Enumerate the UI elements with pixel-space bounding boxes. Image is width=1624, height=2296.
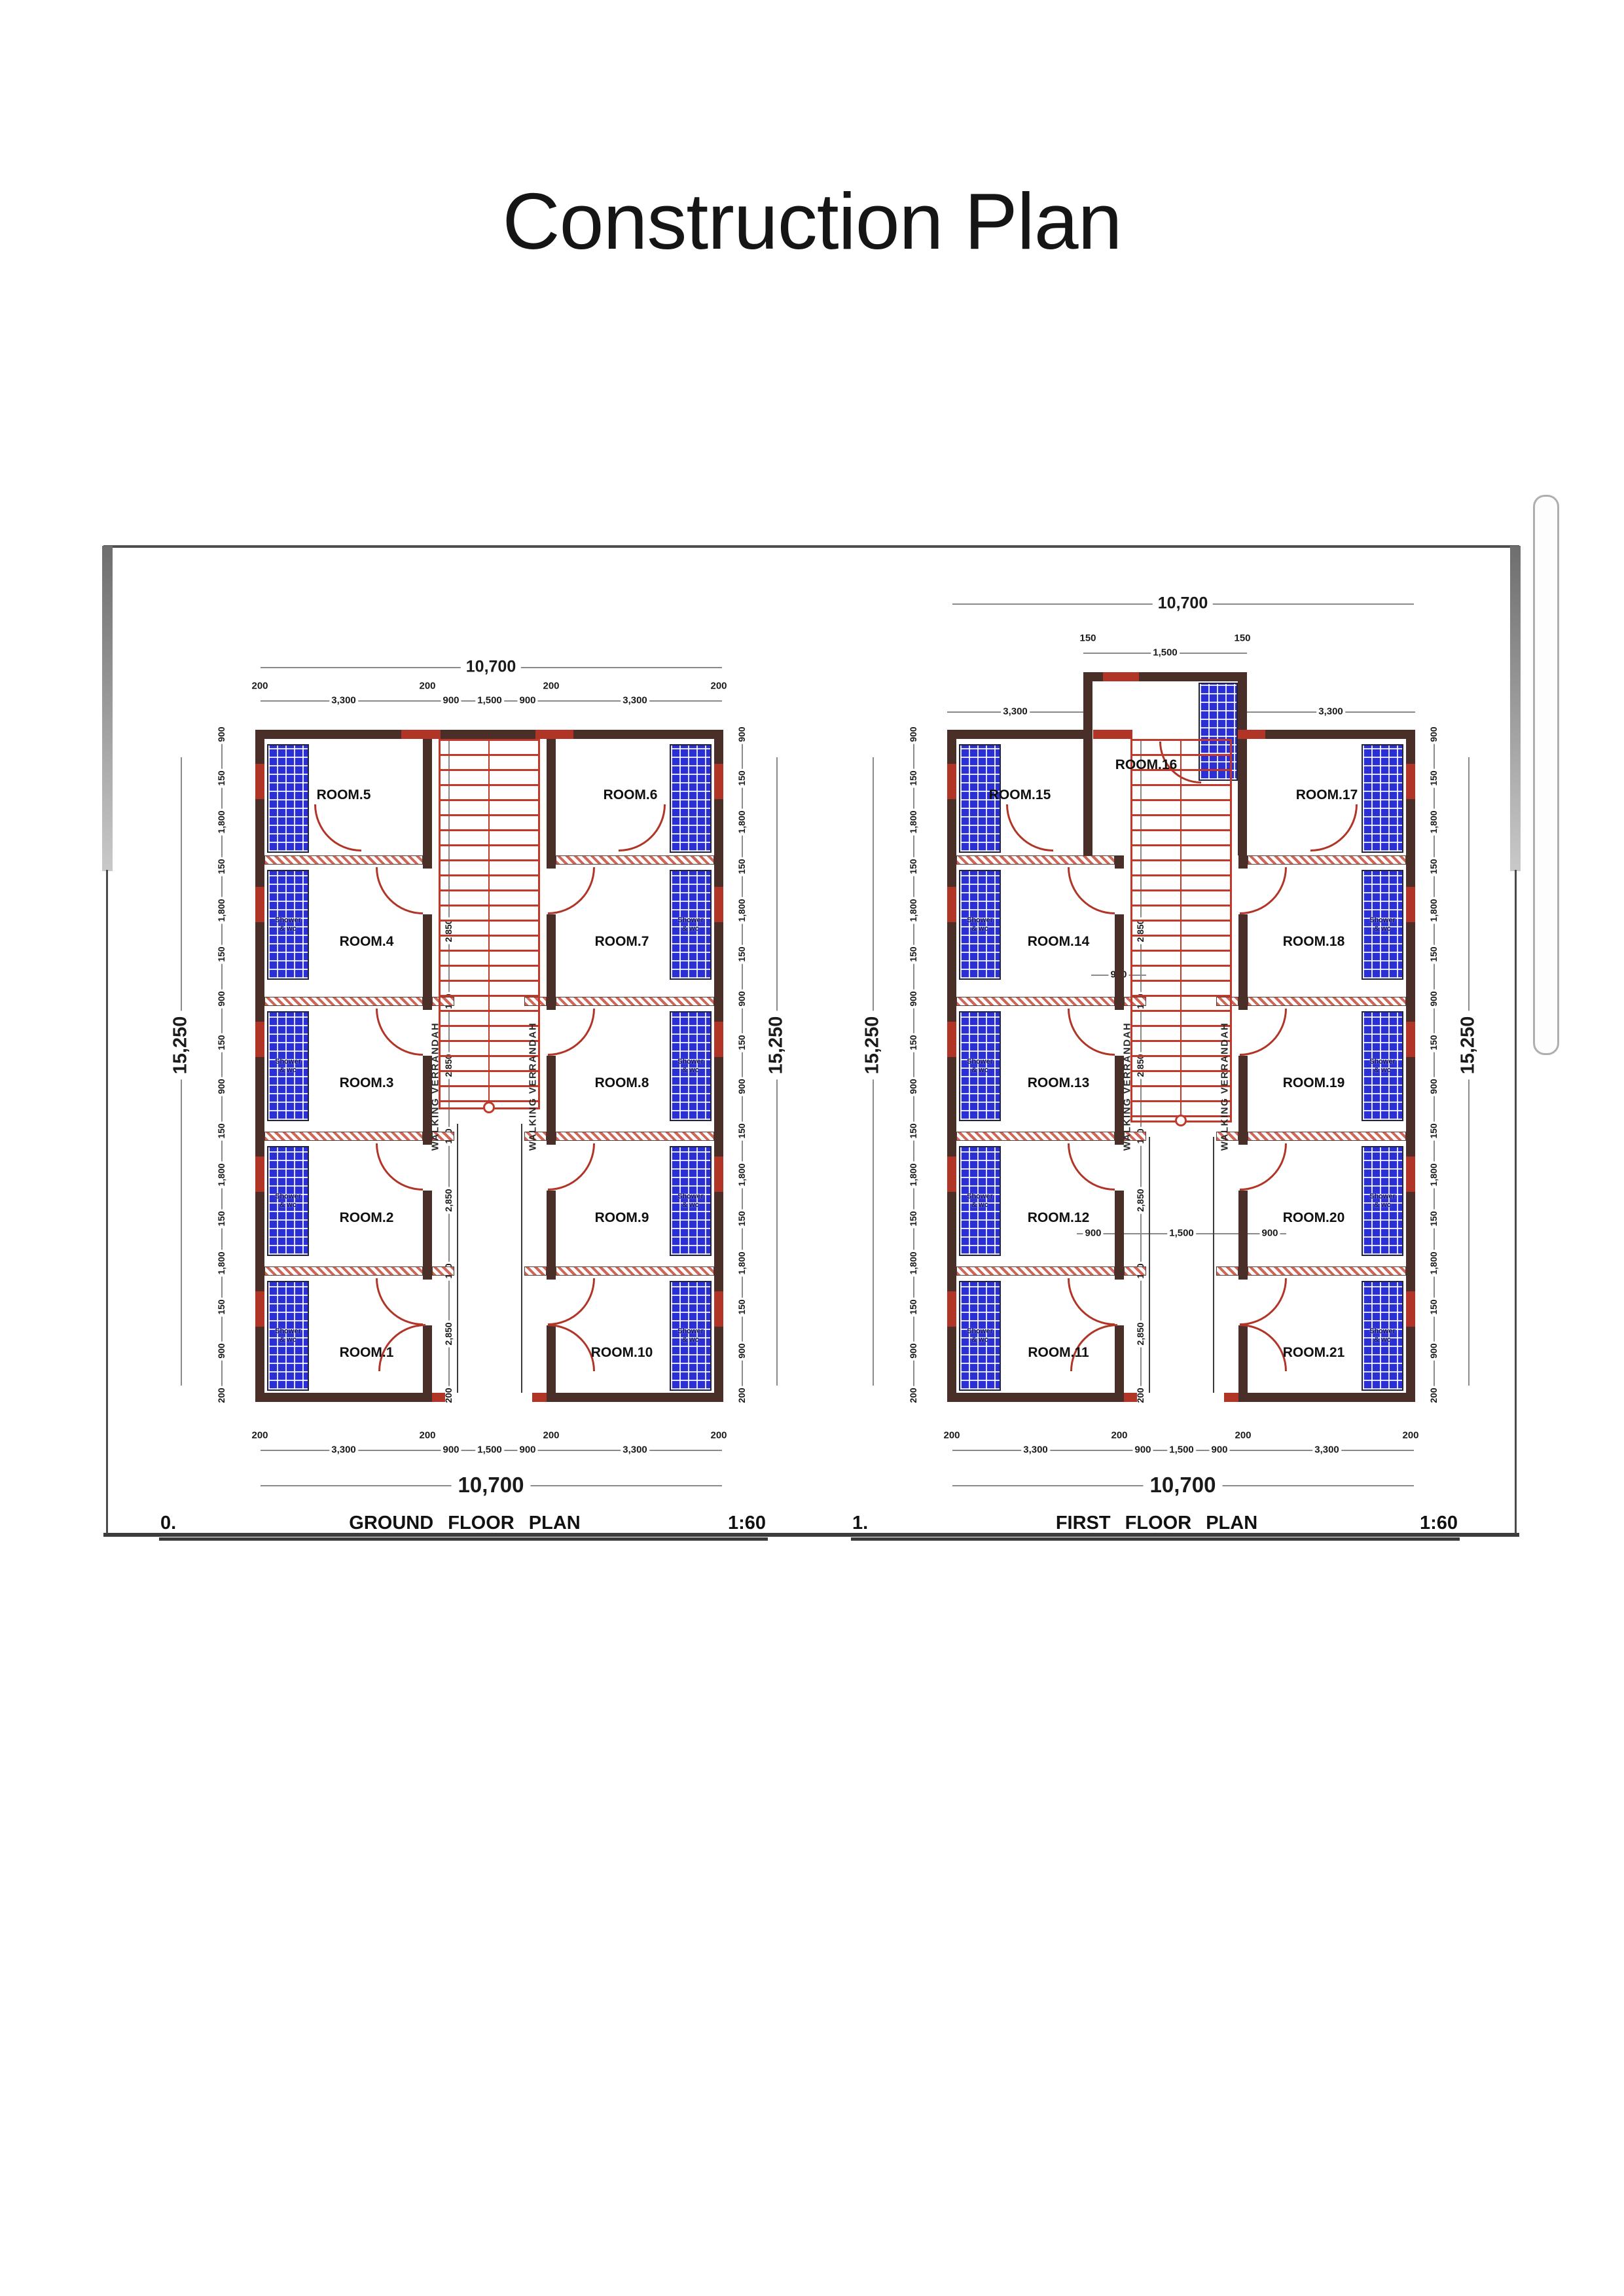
dimension-label: 150: [1428, 944, 1439, 963]
dimension-label: 900: [1259, 1228, 1280, 1239]
wall-opening-marker: [947, 1157, 956, 1192]
room-label: ROOM.9: [595, 1210, 649, 1226]
plans-panel: 10,7002003,3002009001,5009002003,3002002…: [103, 545, 1519, 1537]
wall-opening-marker: [714, 1291, 723, 1327]
dimension-label: 150: [736, 768, 747, 787]
dimension-label: 900: [736, 989, 747, 1008]
shower-tile: Shower & wc: [267, 1011, 309, 1121]
corridor-line: [1213, 1137, 1214, 1393]
door-arc: [548, 1009, 595, 1056]
wall-opening-marker: [1224, 1393, 1238, 1402]
dimension-label: 900: [1083, 1228, 1103, 1239]
shower-label: Shower & wc: [967, 1193, 993, 1210]
dimension-label: 1,800: [1428, 808, 1439, 835]
dimension-label: 150: [1428, 1033, 1439, 1052]
door-gap: [423, 869, 432, 914]
dimension-label: 200: [216, 1386, 226, 1405]
dimension-label: 150: [736, 1033, 747, 1052]
partition-wall: [264, 1266, 423, 1276]
stair-rail: [1180, 739, 1182, 1122]
shower-tile: Shower & wc: [670, 1281, 712, 1391]
wall-opening-marker: [255, 764, 264, 799]
wall-opening-marker: [432, 1393, 445, 1402]
room-label: ROOM.6: [604, 787, 658, 803]
dimension-label: 900: [441, 1444, 461, 1456]
dimension-label: 150: [1077, 633, 1098, 644]
partition-wall: [432, 1266, 454, 1276]
door-arc: [1068, 1278, 1115, 1325]
shower-tile: Shower & wc: [267, 1281, 309, 1391]
scrollbar-thumb[interactable]: [1533, 495, 1559, 1055]
dimension-label: 150: [1428, 1121, 1439, 1140]
room-label: ROOM.10: [591, 1345, 653, 1361]
stair-rail: [488, 739, 490, 1109]
partition-wall: [1216, 1266, 1238, 1276]
dimension-label: 150: [1428, 1297, 1439, 1316]
corridor-line: [1149, 1137, 1150, 1393]
wall-opening-marker: [714, 1157, 723, 1192]
shower-tile: Shower & wc: [267, 870, 309, 980]
room-label: ROOM.8: [595, 1075, 649, 1091]
wall-opening-marker: [714, 764, 723, 799]
door-arc: [548, 1278, 595, 1325]
dimension-label: 150: [216, 857, 226, 876]
dimension-label: 1,500: [1167, 1228, 1196, 1239]
wall: [947, 1393, 1124, 1402]
dimension-label: 900: [908, 989, 918, 1008]
wall-opening-marker: [714, 1022, 723, 1057]
wall-opening-marker: [255, 887, 264, 922]
caption-underline: [851, 1537, 1460, 1541]
dimension-label: 200: [708, 681, 729, 692]
caption-underline: [159, 1537, 768, 1541]
dimension-label: 1,800: [736, 808, 747, 835]
dimension-label: 150: [736, 857, 747, 876]
dimension-label: 900: [908, 725, 918, 744]
dimension-label: 3,300: [1021, 1444, 1050, 1456]
dimension-label: 15,250: [862, 1011, 884, 1080]
dimension-label: 900: [216, 725, 226, 744]
partition-wall: [956, 1266, 1115, 1276]
dimension-label: 1,800: [216, 1161, 226, 1188]
partition-wall: [556, 997, 714, 1006]
dimension-label: 150: [908, 1297, 918, 1316]
wall: [255, 730, 723, 739]
corridor-line: [521, 1124, 522, 1393]
shower-tile: Shower & wc: [1362, 870, 1403, 980]
plan-title: GROUND FLOOR PLAN: [349, 1513, 580, 1534]
dimension-label: 150: [1428, 857, 1439, 876]
door-arc: [1240, 1278, 1287, 1325]
dimension-label: 200: [249, 1430, 270, 1441]
partition-wall: [524, 1266, 547, 1276]
dimension-label: 1,800: [908, 808, 918, 835]
room-label: ROOM.16: [1115, 757, 1178, 773]
door-arc: [376, 1143, 423, 1191]
dimension-label: 900: [216, 1077, 226, 1096]
door-gap: [1115, 1145, 1124, 1191]
wall: [1238, 1393, 1415, 1402]
room-label: ROOM.13: [1028, 1075, 1090, 1091]
dimension-label: 150: [736, 1297, 747, 1316]
partition-wall: [556, 1266, 714, 1276]
dimension-label: 2,850: [443, 1187, 454, 1213]
room-label: ROOM.1: [340, 1345, 394, 1361]
dimension-label: 1,500: [1167, 1444, 1196, 1456]
wall-opening-marker: [1406, 1022, 1415, 1057]
wall-opening-marker: [1124, 1393, 1137, 1402]
dimension-label: 1,800: [216, 1249, 226, 1276]
shower-tile: Shower & wc: [959, 1146, 1001, 1256]
wall-opening-marker: [532, 1393, 547, 1402]
page-title: Construction Plan: [0, 175, 1624, 267]
dimension-label: 200: [417, 681, 437, 692]
door-arc: [376, 1278, 423, 1325]
dimension-label: 1,500: [475, 695, 504, 706]
dimension-label: 2,850: [1135, 1320, 1146, 1347]
dimension-label: 900: [1428, 989, 1439, 1008]
dimension-label: 150: [216, 1033, 226, 1052]
dimension-label: 3,300: [621, 1444, 649, 1456]
dimension-label: 3,300: [1316, 706, 1345, 717]
partition-wall: [264, 997, 423, 1006]
wall: [255, 1393, 432, 1402]
shower-label: Shower & wc: [1369, 1327, 1396, 1344]
dimension-label: 150: [216, 768, 226, 787]
dimension-label: 900: [1428, 1077, 1439, 1096]
room-label: ROOM.7: [595, 934, 649, 950]
door-arc: [1240, 867, 1287, 914]
door-arc: [548, 1143, 595, 1191]
door-arc: [376, 867, 423, 914]
dimension-label: 900: [517, 1444, 537, 1456]
partition-wall: [264, 855, 423, 865]
dimension-label: 1,800: [736, 897, 747, 924]
room-label: ROOM.14: [1028, 934, 1090, 950]
door-arc: [1068, 1143, 1115, 1191]
corridor-line: [457, 1124, 458, 1393]
shower-tile: Shower & wc: [267, 1146, 309, 1256]
dimension-label: 150: [908, 857, 918, 876]
corridor-label: WALKING VERRANDAH: [430, 1022, 441, 1151]
dimension-label: 2,850: [1135, 1187, 1146, 1213]
dimension-label: 1,800: [1428, 1249, 1439, 1276]
dimension-label: 3,300: [1001, 706, 1030, 717]
dimension-label: 900: [736, 1077, 747, 1096]
wall-opening-marker: [947, 887, 956, 922]
plan-index: 0.: [160, 1513, 176, 1534]
dimension-label: 150: [1428, 1209, 1439, 1228]
door-arc: [314, 804, 361, 852]
dimension-label: 900: [1132, 1444, 1153, 1456]
wall-opening-marker: [1406, 1157, 1415, 1192]
dimension-label: 900: [736, 725, 747, 744]
door-gap: [1115, 1280, 1124, 1325]
partition-wall: [1248, 997, 1406, 1006]
dimension-label: 1,800: [736, 1249, 747, 1276]
wall-opening-marker: [947, 1291, 956, 1327]
dimension-label: 900: [216, 989, 226, 1008]
wall-opening-marker: [1406, 764, 1415, 799]
door-arc: [1310, 804, 1358, 852]
dimension-label: 200: [1400, 1430, 1420, 1441]
door-gap: [423, 1280, 432, 1325]
dimension-label: 900: [216, 1341, 226, 1360]
partition-wall: [956, 855, 1115, 865]
shower-label: Shower & wc: [677, 916, 704, 933]
partition-wall: [1248, 1132, 1406, 1141]
corridor-label: WALKING VERRANDAH: [1219, 1022, 1231, 1151]
wall: [547, 1393, 723, 1402]
room-label: ROOM.3: [340, 1075, 394, 1091]
dimension-label: 150: [1428, 768, 1439, 787]
dimension-label: 900: [1428, 1341, 1439, 1360]
wall-opening-marker: [255, 1022, 264, 1057]
dimension-label: 150: [908, 768, 918, 787]
shower-tile: Shower & wc: [670, 1011, 712, 1121]
dimension-label: 200: [908, 1386, 918, 1405]
dimension-label: 3,300: [1312, 1444, 1341, 1456]
door-gap: [1115, 869, 1124, 914]
wall-opening-marker: [255, 1157, 264, 1192]
shower-tile: Shower & wc: [670, 870, 712, 980]
room-label: ROOM.17: [1296, 787, 1358, 803]
room-label: ROOM.15: [989, 787, 1051, 803]
ground-floor-plan: 10,7002003,3002009001,5009002003,3002002…: [103, 548, 811, 1533]
dimension-label: 15,250: [766, 1011, 787, 1080]
dimension-label: 900: [908, 1077, 918, 1096]
dimension-label: 150: [908, 1033, 918, 1052]
room-label: ROOM.4: [340, 934, 394, 950]
partition-wall: [556, 1132, 714, 1141]
dimension-label: 150: [216, 1121, 226, 1140]
plan-title: FIRST FLOOR PLAN: [1056, 1513, 1257, 1534]
shower-label: Shower & wc: [967, 1058, 993, 1075]
dimension-label: 900: [1428, 725, 1439, 744]
door-arc: [1240, 1324, 1287, 1371]
shower-tile: Shower & wc: [1362, 1146, 1403, 1256]
stair-end: [1175, 1115, 1187, 1126]
dimension-label: 15,250: [1458, 1011, 1479, 1080]
dimension-label: 150: [1232, 633, 1252, 644]
shower-label: Shower & wc: [275, 1193, 301, 1210]
first-floor-plan: 10,7001501,5001503,3003,3002003,30020090…: [795, 548, 1503, 1533]
wall: [1238, 681, 1247, 855]
door-arc: [548, 867, 595, 914]
dimension-label: 1,500: [475, 1444, 504, 1456]
shower-label: Shower & wc: [967, 916, 993, 933]
partition-wall: [1124, 1266, 1146, 1276]
door-arc: [376, 1009, 423, 1056]
room-label: ROOM.5: [317, 787, 371, 803]
dimension-label: 200: [1109, 1430, 1129, 1441]
wall-opening-marker: [1103, 672, 1139, 681]
dimension-label: 150: [216, 944, 226, 963]
dimension-label: 150: [736, 944, 747, 963]
wall-opening-marker: [1406, 1291, 1415, 1327]
door-gap: [423, 1145, 432, 1191]
partition-wall: [1248, 855, 1406, 865]
door-arc: [1006, 804, 1053, 852]
shower-tile: Shower & wc: [959, 1011, 1001, 1121]
dimension-label: 200: [249, 681, 270, 692]
stair-end: [483, 1102, 495, 1113]
shower-label: Shower & wc: [1369, 916, 1396, 933]
wall-opening-marker: [401, 730, 441, 739]
dimension-label: 150: [736, 1121, 747, 1140]
dimension-label: 200: [941, 1430, 962, 1441]
room-label: ROOM.12: [1028, 1210, 1090, 1226]
room-label: ROOM.11: [1028, 1345, 1089, 1361]
dimension-label: 150: [908, 944, 918, 963]
shower-label: Shower & wc: [1369, 1058, 1396, 1075]
shower-tile: Shower & wc: [670, 1146, 712, 1256]
dimension-label: 900: [736, 1341, 747, 1360]
dimension-label: 200: [417, 1430, 437, 1441]
corridor-label: WALKING VERRANDAH: [528, 1022, 539, 1151]
plan-index: 1.: [852, 1513, 868, 1534]
panel-right-border-shadow: [1510, 546, 1521, 871]
door-arc: [1240, 1143, 1287, 1191]
dimension-label: 200: [1428, 1386, 1439, 1405]
shower-label: Shower & wc: [967, 1327, 993, 1344]
dimension-label: 900: [517, 695, 537, 706]
dimension-label: 200: [541, 681, 561, 692]
dimension-label: 1,800: [908, 897, 918, 924]
dimension-label: 1,800: [736, 1161, 747, 1188]
dimension-label: 150: [908, 1121, 918, 1140]
wall-opening-marker: [1093, 730, 1132, 739]
wall: [1247, 730, 1415, 739]
dimension-label: 3,300: [621, 695, 649, 706]
shower-label: Shower & wc: [677, 1193, 704, 1210]
dimension-label: 1,800: [1428, 1161, 1439, 1188]
wall-opening-marker: [255, 1291, 264, 1327]
dimension-label: 200: [541, 1430, 561, 1441]
dimension-label: 150: [216, 1297, 226, 1316]
wall-opening-marker: [1406, 887, 1415, 922]
window-tile: [267, 744, 309, 853]
dimension-label: 1,800: [1428, 897, 1439, 924]
wall-opening-marker: [714, 887, 723, 922]
window-tile: [670, 744, 712, 853]
dimension-label: 900: [441, 695, 461, 706]
shower-label: Shower & wc: [1369, 1193, 1396, 1210]
shower-tile: Shower & wc: [959, 870, 1001, 980]
wall-opening-marker: [947, 1022, 956, 1057]
dimension-label: 15,250: [170, 1011, 192, 1080]
partition-wall: [956, 997, 1115, 1006]
shower-tile: Shower & wc: [959, 1281, 1001, 1391]
room-label: ROOM.19: [1283, 1075, 1345, 1091]
partition-wall: [556, 855, 714, 865]
door-arc: [1068, 1009, 1115, 1056]
shower-label: Shower & wc: [275, 1327, 301, 1344]
dimension-label: 10,700: [452, 1473, 531, 1498]
corridor-label: WALKING VERRANDAH: [1122, 1022, 1133, 1151]
window-tile: [1362, 744, 1403, 853]
shower-tile: Shower & wc: [1362, 1011, 1403, 1121]
dimension-label: 10,700: [1153, 594, 1213, 613]
partition-wall: [956, 1132, 1115, 1141]
wall-opening-marker: [947, 764, 956, 799]
panel-right-border: [1515, 870, 1517, 1534]
room-label: ROOM.2: [340, 1210, 394, 1226]
dimension-label: 150: [736, 1209, 747, 1228]
shower-label: Shower & wc: [677, 1058, 704, 1075]
dimension-label: 1,800: [908, 1249, 918, 1276]
partition-wall: [1248, 1266, 1406, 1276]
dimension-label: 1,800: [216, 897, 226, 924]
partition-wall: [264, 1132, 423, 1141]
plan-scale: 1:60: [728, 1513, 766, 1534]
dimension-label: 200: [736, 1386, 747, 1405]
dimension-label: 900: [908, 1341, 918, 1360]
wall: [947, 730, 1083, 739]
dimension-label: 1,800: [216, 808, 226, 835]
room-label: ROOM.20: [1283, 1210, 1345, 1226]
dimension-label: 1,800: [908, 1161, 918, 1188]
dimension-label: 10,700: [461, 658, 521, 677]
door-arc: [1068, 867, 1115, 914]
shower-tile: Shower & wc: [1362, 1281, 1403, 1391]
dimension-label: 10,700: [1144, 1473, 1223, 1498]
dimension-label: 2,850: [443, 1320, 454, 1347]
wall: [1083, 681, 1092, 855]
room-label: ROOM.21: [1283, 1345, 1345, 1361]
shower-label: Shower & wc: [677, 1327, 704, 1344]
shower-label: Shower & wc: [275, 1058, 301, 1075]
plan-scale: 1:60: [1420, 1513, 1458, 1534]
dimension-label: 3,300: [329, 1444, 358, 1456]
door-arc: [619, 804, 666, 852]
door-arc: [548, 1324, 595, 1371]
wall-opening-marker: [535, 730, 573, 739]
room-label: ROOM.18: [1283, 934, 1345, 950]
dimension-label: 3,300: [329, 695, 358, 706]
shower-label: Shower & wc: [275, 916, 301, 933]
dimension-label: 200: [1233, 1430, 1253, 1441]
dimension-label: 200: [708, 1430, 729, 1441]
dimension-label: 1,500: [1151, 647, 1180, 658]
dimension-label: 900: [1209, 1444, 1229, 1456]
door-arc: [1240, 1009, 1287, 1056]
dimension-label: 150: [908, 1209, 918, 1228]
dimension-label: 150: [216, 1209, 226, 1228]
